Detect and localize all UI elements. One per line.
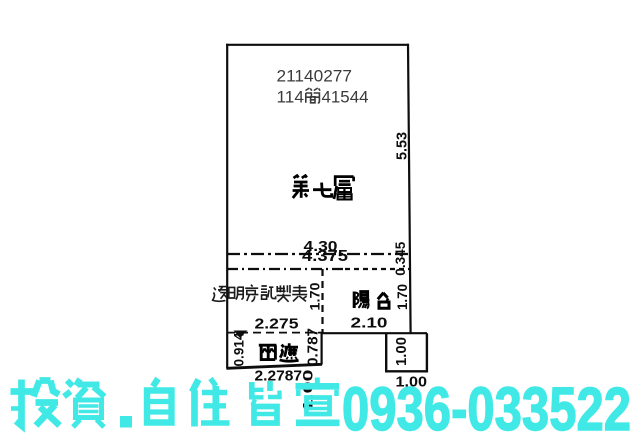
svg-text:0936-033522: 0936-033522	[342, 375, 631, 440]
svg-text:2.2787: 2.2787	[255, 368, 303, 385]
svg-text:1.00: 1.00	[393, 337, 410, 366]
svg-text:2.275: 2.275	[255, 315, 299, 332]
svg-text:5.53: 5.53	[393, 132, 410, 160]
svg-text:0.787: 0.787	[305, 328, 322, 366]
svg-text:21140277: 21140277	[277, 67, 353, 86]
svg-text:1.70: 1.70	[394, 284, 410, 310]
svg-text:4.375: 4.375	[302, 248, 348, 265]
svg-text:2.10: 2.10	[351, 316, 388, 332]
svg-text:1.70: 1.70	[306, 282, 322, 310]
svg-text:114: 114	[277, 87, 305, 106]
svg-text:0.914: 0.914	[231, 332, 247, 366]
svg-text:0.345: 0.345	[393, 241, 408, 275]
svg-text:41544: 41544	[322, 87, 369, 106]
